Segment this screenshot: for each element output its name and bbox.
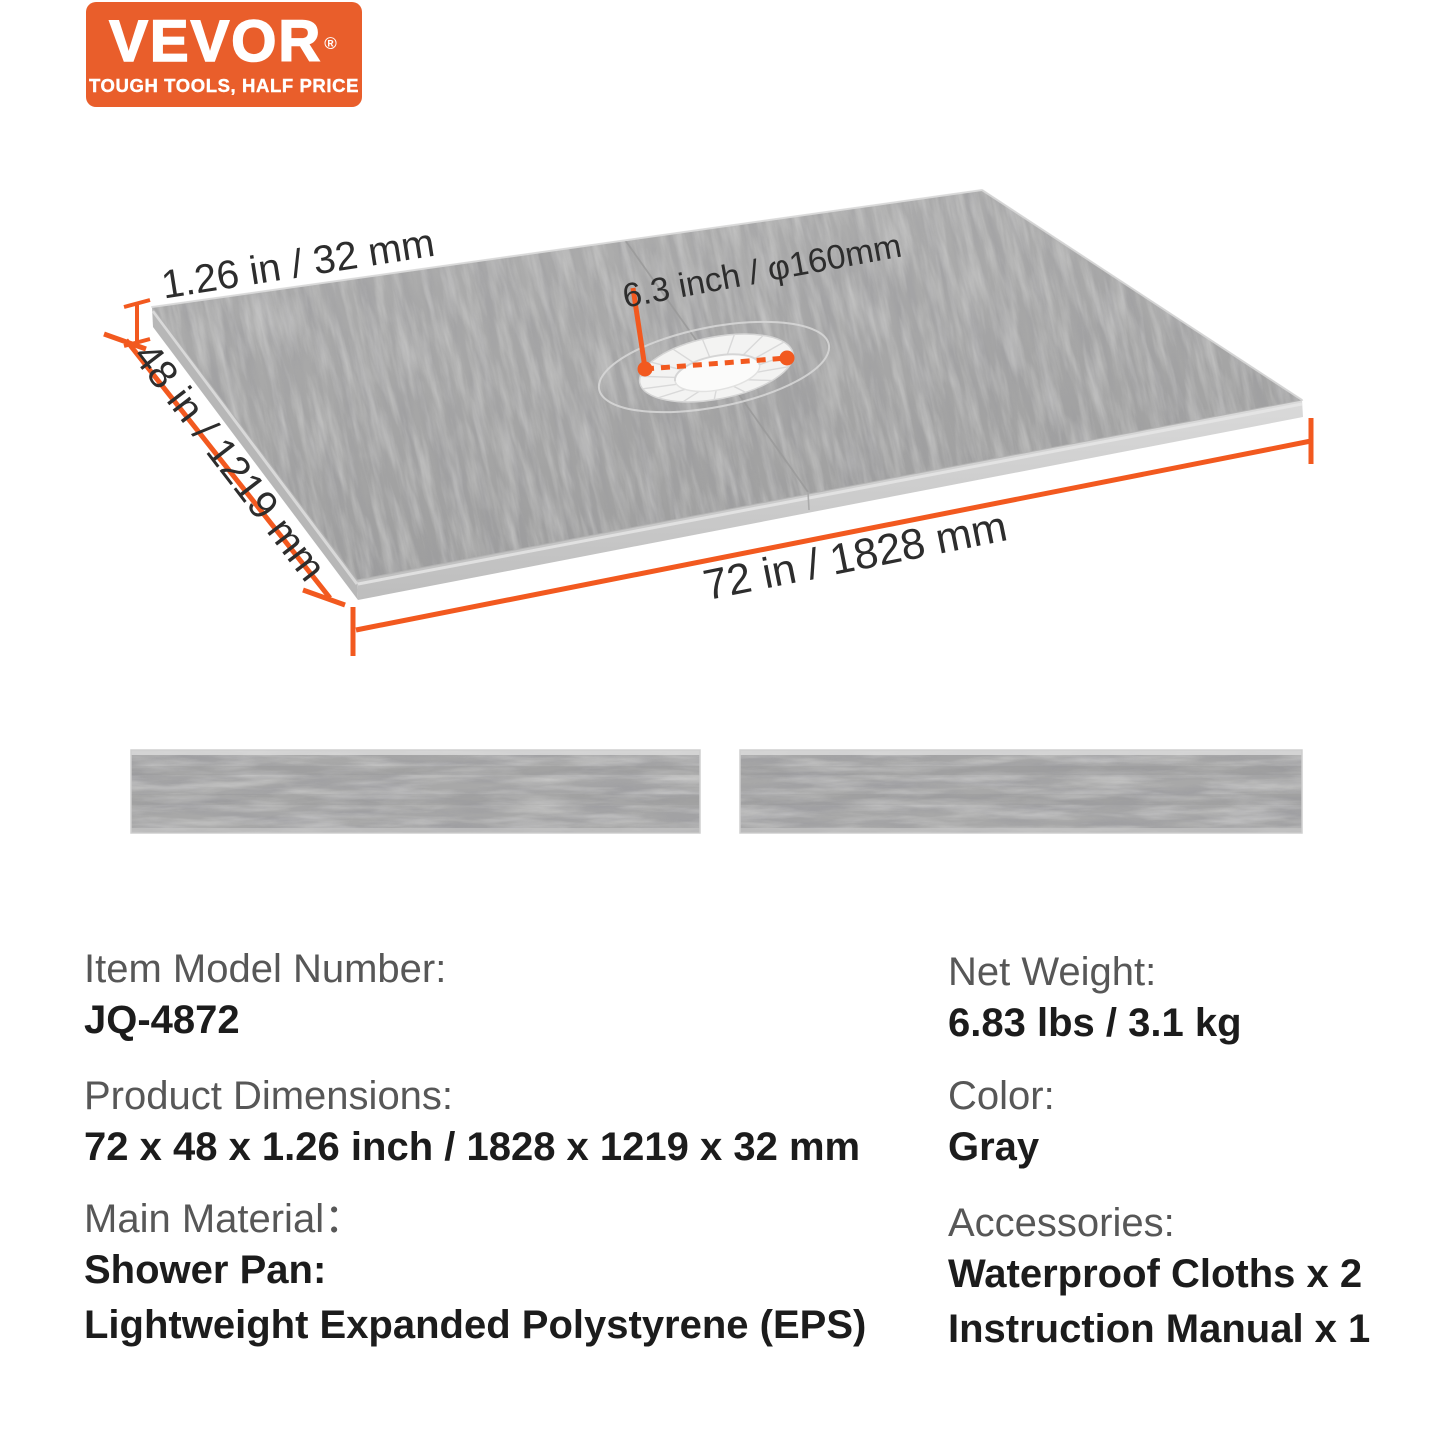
spec-main-material: Main Material： Shower Pan: Lightweight E… [84,1196,866,1353]
spec-accessories: Accessories: Waterproof Cloths x 2 Instr… [948,1200,1370,1357]
spec-value: Gray [948,1120,1055,1175]
shower-pan-illustration: 1.26 in / 32 mm 48 in / 1219 mm 72 in / … [0,0,1445,880]
spec-label: Net Weight: [948,949,1242,996]
spec-value: Waterproof Cloths x 2 [948,1247,1370,1302]
spec-value: Lightweight Expanded Polystyrene (EPS) [84,1298,866,1353]
spec-value: 6.83 lbs / 3.1 kg [948,996,1242,1051]
spec-value: 72 x 48 x 1.26 inch / 1828 x 1219 x 32 m… [84,1120,860,1175]
spec-color: Color: Gray [948,1073,1055,1175]
spec-label: Item Model Number: [84,946,446,993]
spec-label: Product Dimensions: [84,1073,860,1120]
spec-product-dimensions: Product Dimensions: 72 x 48 x 1.26 inch … [84,1073,860,1175]
spec-label: Main Material： [84,1196,866,1243]
spec-value: Instruction Manual x 1 [948,1302,1370,1357]
curb-strips [100,745,1350,840]
spec-label: Accessories: [948,1200,1370,1247]
spec-net-weight: Net Weight: 6.83 lbs / 3.1 kg [948,949,1242,1051]
product-info-sheet: VEVOR ® TOUGH TOOLS, HALF PRICE [0,0,1445,1445]
spec-value: Shower Pan: [84,1243,866,1298]
spec-item-model: Item Model Number: JQ-4872 [84,946,446,1048]
spec-label: Color: [948,1073,1055,1120]
spec-value: JQ-4872 [84,993,446,1048]
